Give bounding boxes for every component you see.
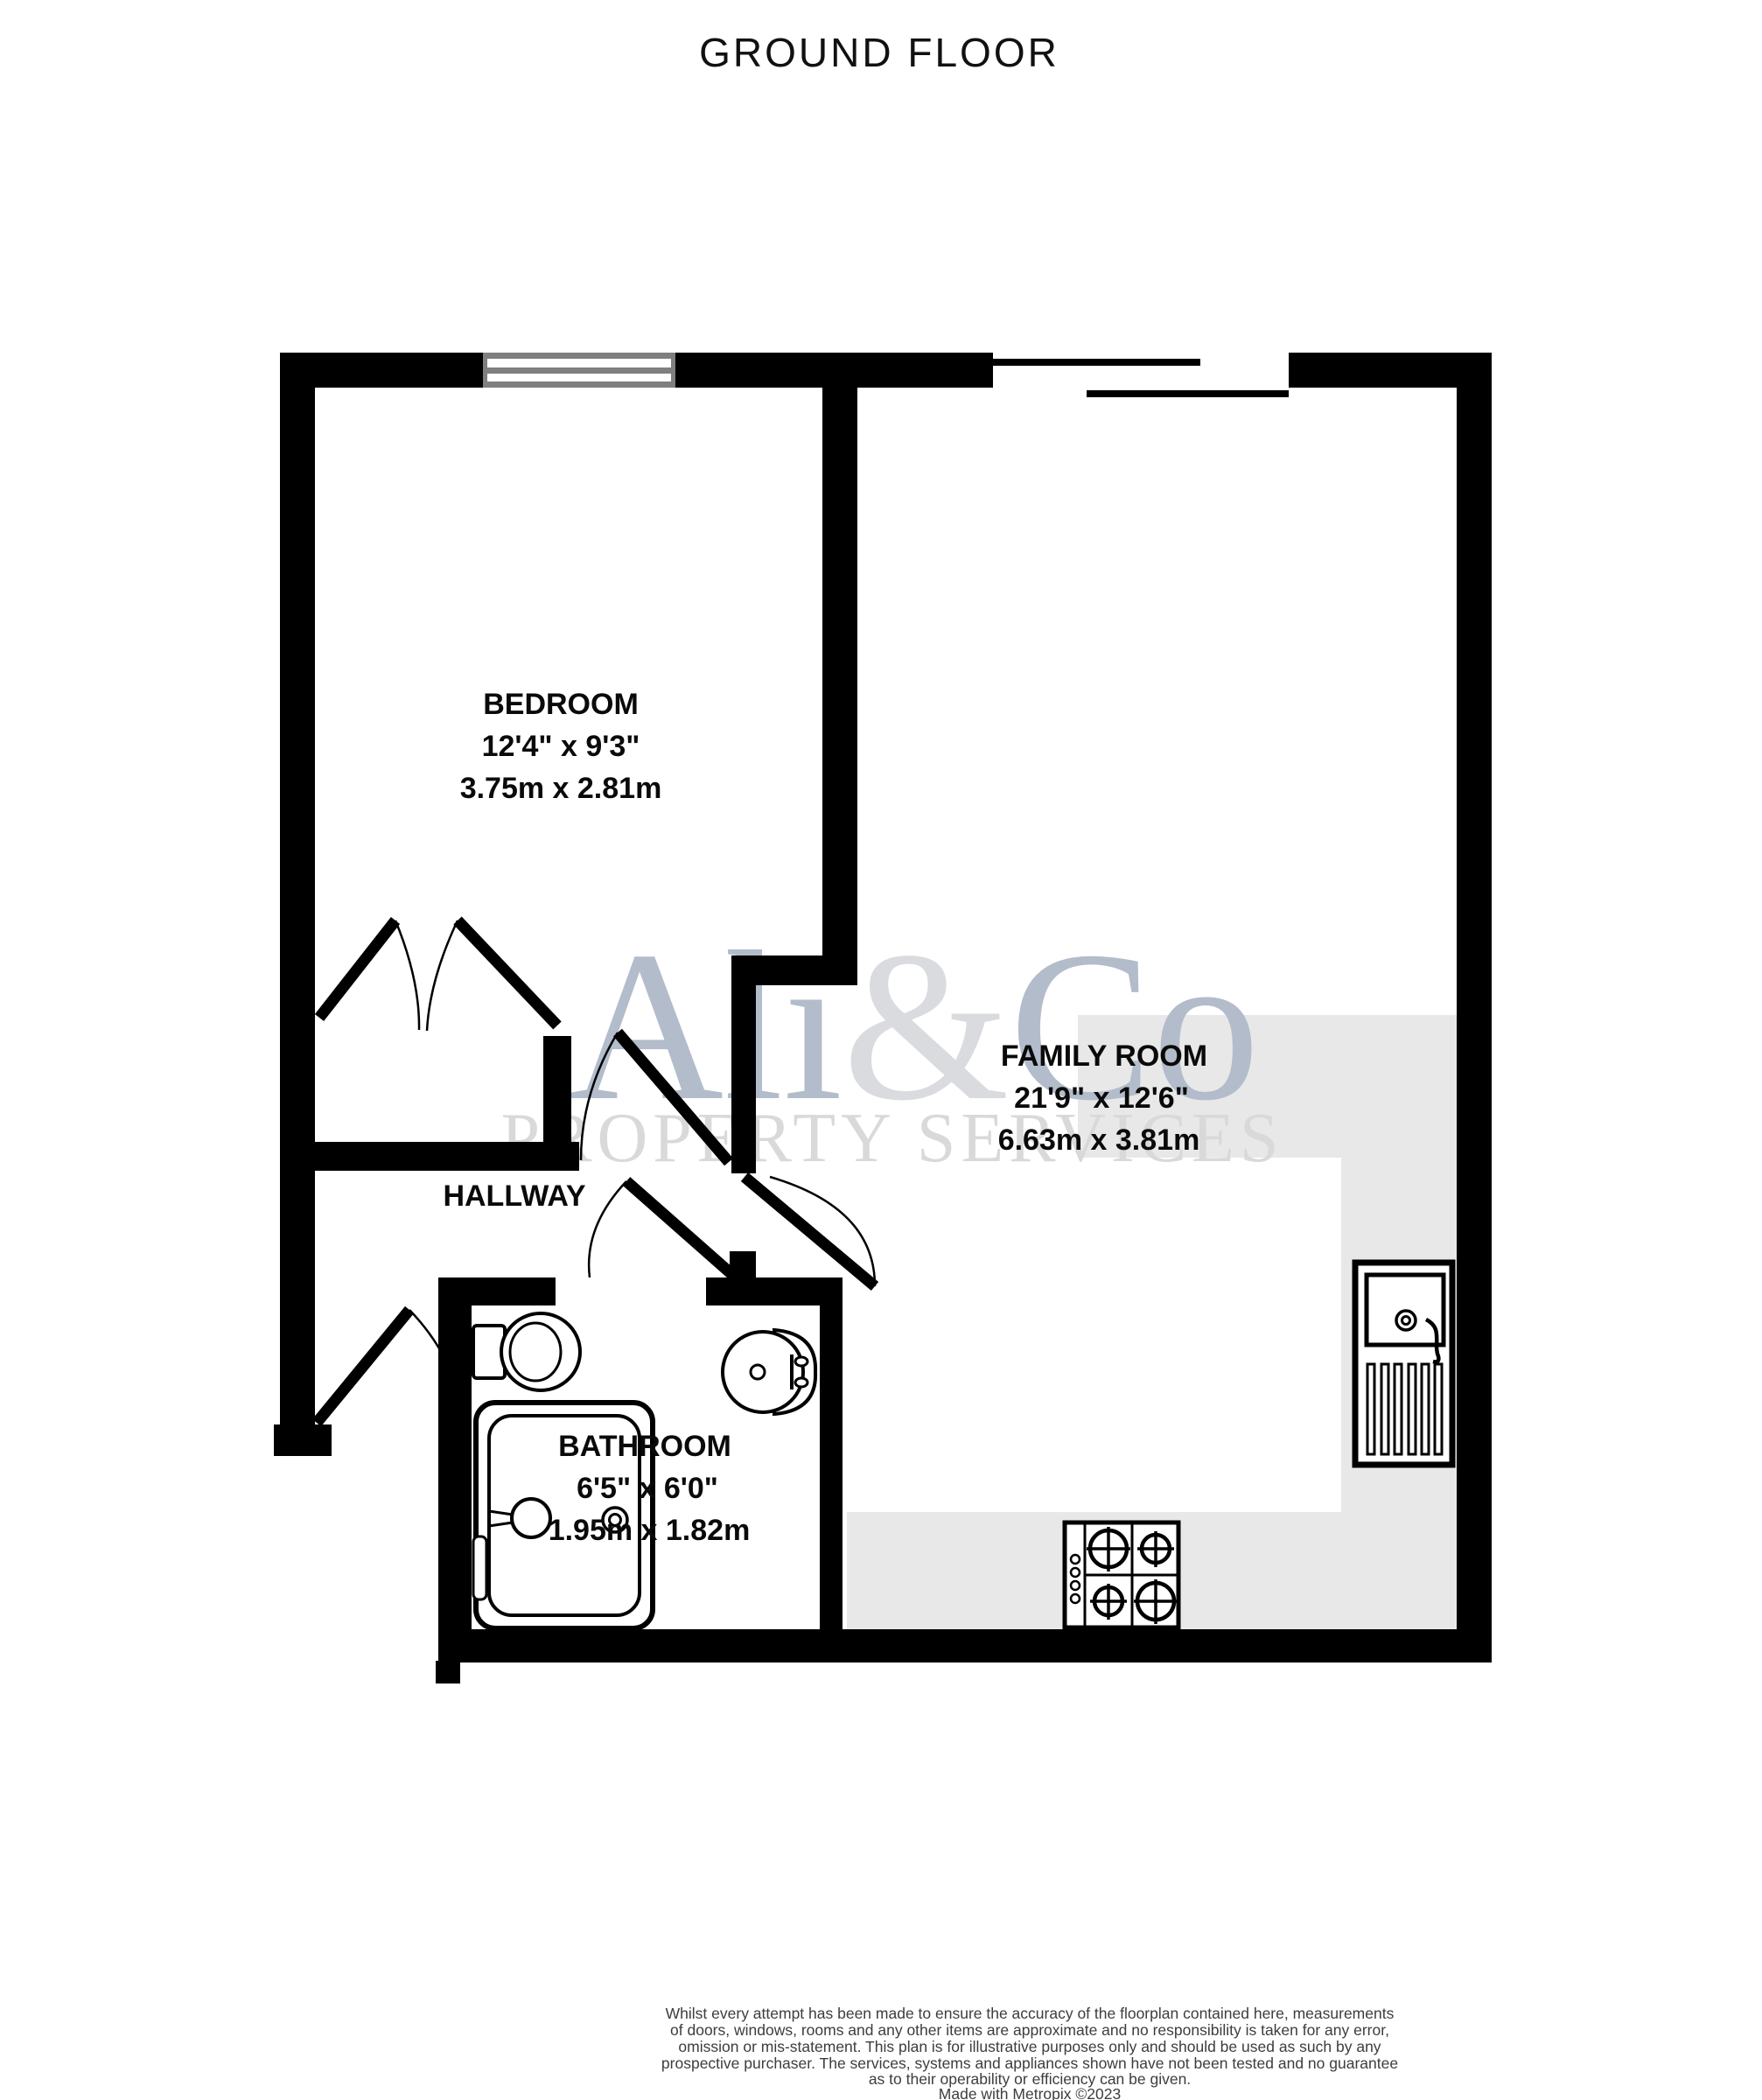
- disclaimer-line: Whilst every attempt has been made to en…: [666, 2005, 1395, 2022]
- wall-bedroom-stub: [543, 1036, 571, 1142]
- door-leaf: [626, 1181, 738, 1279]
- bedroom-name: BEDROOM: [483, 688, 639, 721]
- bathtub-handle: [473, 1536, 486, 1599]
- door-arc: [395, 920, 419, 1030]
- bathroom-metric-dims: 1.95m x 1.82m: [549, 1514, 751, 1547]
- family-room-name: FAMILY ROOM: [1001, 1039, 1207, 1073]
- toilet-bowl: [501, 1313, 580, 1390]
- window-frame-middle: [483, 367, 675, 374]
- door-arc: [427, 920, 458, 1031]
- wall-bathroom-right: [820, 1283, 843, 1629]
- drainer-groove: [1409, 1364, 1416, 1454]
- bedroom-label: BEDROOM 12'4" x 9'3" 3.75m x 2.81m: [460, 688, 662, 805]
- door-leaf: [319, 920, 395, 1018]
- bathroom-name: BATHROOM: [558, 1430, 731, 1463]
- wall-bedroom-bottom: [315, 1142, 579, 1171]
- bedroom-metric-dims: 3.75m x 2.81m: [460, 772, 662, 805]
- drainer-groove: [1367, 1364, 1374, 1454]
- bathroom-imperial-dims: 6'5" x 6'0": [577, 1472, 718, 1505]
- sink-tap-handle: [795, 1378, 808, 1387]
- bedroom-imperial-dims: 12'4" x 9'3": [482, 730, 640, 763]
- window-frame-top: [483, 353, 675, 359]
- hallway-name: HALLWAY: [443, 1179, 585, 1213]
- bedroom-double-door: [319, 920, 557, 1031]
- family-room-door: [745, 1177, 875, 1286]
- door-leaf: [458, 920, 557, 1025]
- wall-right: [1457, 353, 1492, 1662]
- wall-hallway-family-divider: [731, 955, 756, 1173]
- door-arc: [589, 1181, 626, 1277]
- toilet-icon: [473, 1313, 580, 1390]
- door-leaf: [317, 1310, 409, 1423]
- wall-bottom: [438, 1629, 1492, 1662]
- disclaimer-line: of doors, windows, rooms and any other i…: [670, 2021, 1389, 2039]
- disclaimer-line: prospective purchaser. The services, sys…: [661, 2054, 1398, 2072]
- window-frame-right: [671, 353, 675, 388]
- bathtub-tap: [512, 1499, 550, 1537]
- bathroom-sink-icon: [723, 1330, 815, 1414]
- family-room-label: FAMILY ROOM 21'9" x 12'6" 6.63m x 3.81m: [998, 1039, 1207, 1157]
- opening-line-lower: [1087, 390, 1289, 397]
- disclaimer-credit: Made with Metropix ©2023: [939, 2085, 1121, 2100]
- drainer-groove: [1435, 1364, 1442, 1454]
- wall-bathroom-left: [438, 1277, 472, 1662]
- wall-left: [280, 353, 315, 1456]
- floorplan-page: GROUND FLOOR Ali&Co PROPERTY SERVICES: [0, 0, 1762, 2100]
- window-frame-left: [483, 353, 487, 388]
- wall-bedroom-family-divider: [822, 388, 857, 985]
- door-leaf: [745, 1177, 875, 1286]
- family-room-imperial-dims: 21'9" x 12'6": [1014, 1081, 1189, 1115]
- disclaimer: Whilst every attempt has been made to en…: [661, 2005, 1398, 2100]
- family-room-metric-dims: 6.63m x 3.81m: [998, 1123, 1200, 1157]
- hallway-label: HALLWAY: [443, 1179, 585, 1213]
- hob-icon: [1065, 1522, 1178, 1627]
- wall-bathroom-top-left: [438, 1277, 556, 1305]
- wall-left-foot: [274, 1424, 332, 1456]
- window-frame-bottom: [483, 381, 675, 388]
- bathroom-label: BATHROOM 6'5" x 6'0" 1.95m x 1.82m: [549, 1430, 751, 1547]
- drainer-groove: [1422, 1364, 1429, 1454]
- page-title: GROUND FLOOR: [699, 30, 1059, 75]
- sink-tap-handle: [795, 1357, 808, 1366]
- kitchen-sink-icon: [1355, 1263, 1452, 1465]
- drainer-groove: [1395, 1364, 1402, 1454]
- window: [483, 353, 675, 388]
- drainer-groove: [1381, 1364, 1388, 1454]
- opening-line-upper: [993, 359, 1200, 366]
- wall-bathroom-left-foot: [436, 1661, 460, 1683]
- bathroom-door: [589, 1181, 738, 1279]
- wall-top-middle: [675, 353, 993, 388]
- disclaimer-line: omission or mis-statement. This plan is …: [678, 2038, 1381, 2055]
